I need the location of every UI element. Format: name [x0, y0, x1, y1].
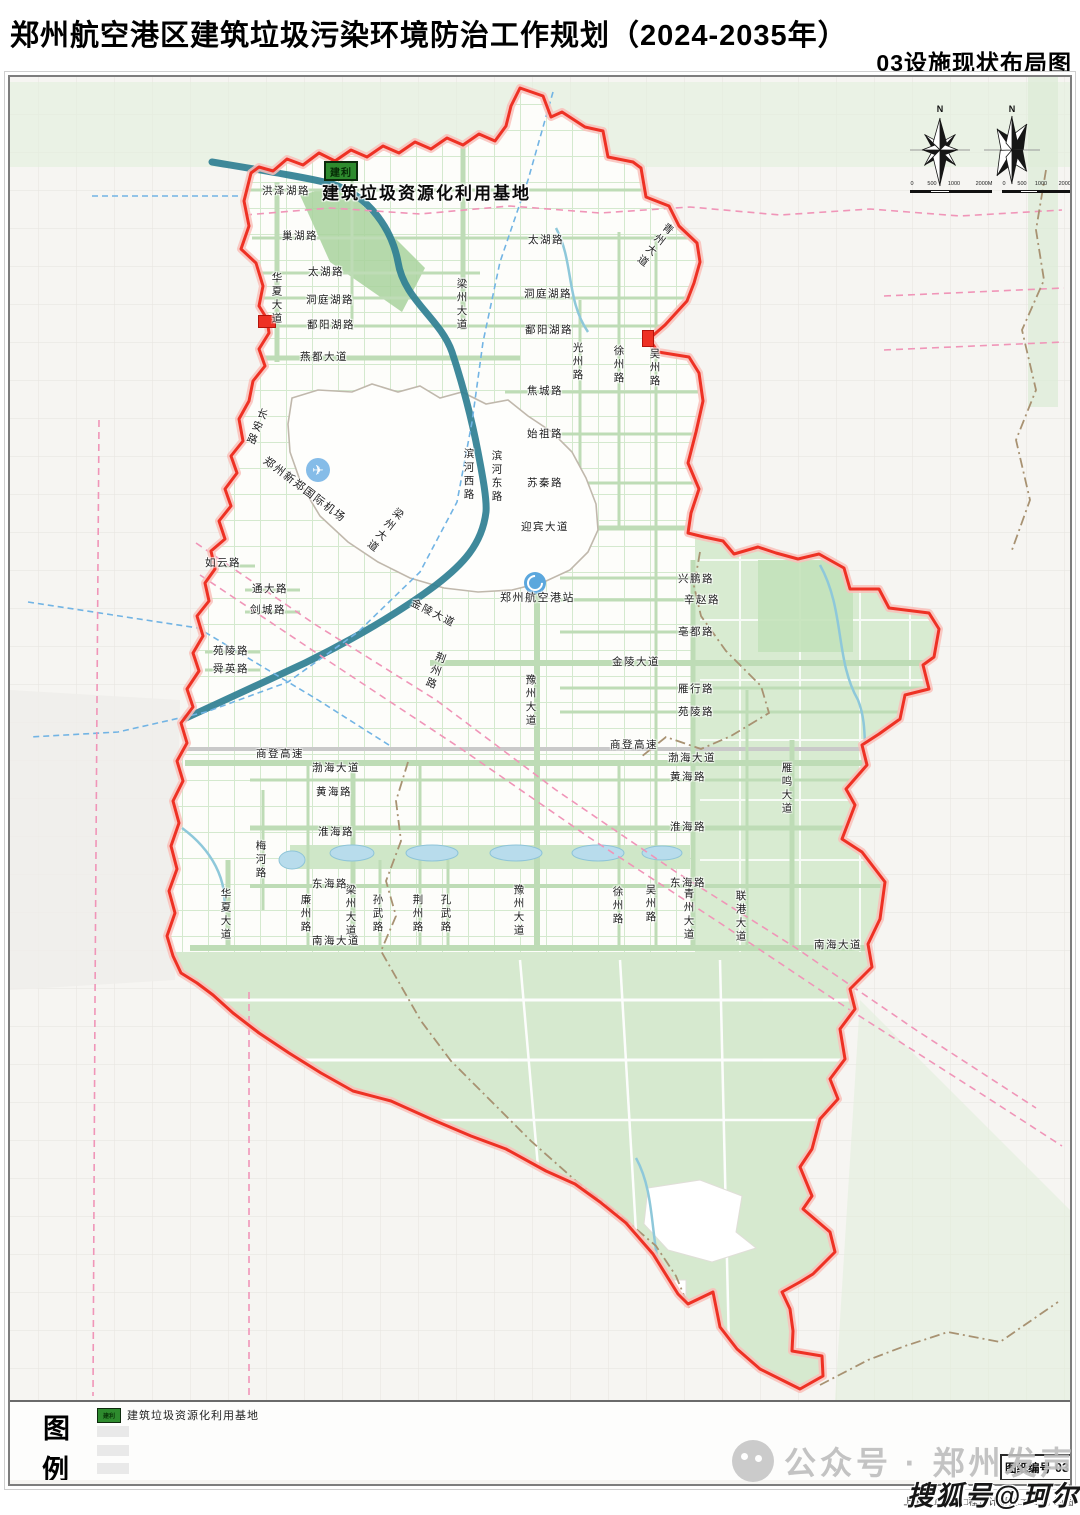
road-label: 吴州路	[644, 884, 656, 925]
road-label: 郑州航空港站	[500, 592, 575, 604]
road-label: 雁行路	[678, 684, 714, 696]
road-label: 苑陵路	[678, 707, 714, 719]
scale-bar-1: 0 500 1000 2000M	[910, 181, 992, 197]
road-label: 光州路	[571, 342, 583, 383]
road-label: 苏秦路	[527, 478, 563, 490]
road-label: 洞庭湖路	[306, 295, 354, 307]
road-label: 迎宾大道	[521, 522, 569, 534]
page: 郑州航空港区建筑垃圾污染环境防治工作规划（2024-2035年） 03设施现状布…	[0, 0, 1080, 1515]
legend-placeholder	[97, 1426, 129, 1437]
watermark-sohu: 搜狐号@珂尔	[907, 1474, 1080, 1513]
railway-station-icon	[524, 572, 546, 594]
road-label: 始祖路	[527, 429, 563, 441]
road-label: 淮海路	[670, 822, 706, 834]
road-label: 荆州路	[411, 894, 423, 935]
legend-title-top: 图	[43, 1407, 72, 1446]
road-label: 太湖路	[308, 267, 344, 279]
road-label: 徐州路	[612, 345, 624, 386]
road-label: 太湖路	[528, 235, 564, 247]
road-label: 巢湖路	[282, 231, 318, 243]
road-label: 渤海大道	[312, 763, 360, 775]
road-label: 渤海大道	[668, 753, 716, 765]
road-label: 梅河路	[254, 840, 266, 881]
road-label: 洞庭湖路	[524, 289, 572, 301]
road-label: 黄海路	[670, 772, 706, 784]
road-label: 联港大道	[734, 890, 746, 944]
road-label: 华夏大道	[219, 888, 231, 942]
road-label: 华夏大道	[270, 272, 282, 326]
road-label: 辛赵路	[684, 595, 720, 607]
road-label: 梁州大道	[344, 884, 356, 938]
legend-placeholder	[97, 1445, 129, 1456]
road-label: 商登高速	[610, 740, 658, 752]
compass-north-label: N	[937, 104, 944, 114]
road-label: 南海大道	[814, 940, 862, 952]
facility-callout-label: 建筑垃圾资源化利用基地	[322, 179, 531, 204]
road-label: 豫州大道	[512, 884, 524, 938]
page-title: 郑州航空港区建筑垃圾污染环境防治工作规划（2024-2035年）	[10, 12, 848, 54]
map-drawing: N N	[10, 77, 1070, 1400]
road-label: 金陵大道	[612, 657, 660, 669]
road-label: 吴州路	[648, 348, 660, 389]
facility-marker-jianli: 建利	[324, 161, 358, 181]
page-subtitle: 03设施现状布局图	[876, 44, 1072, 78]
road-label: 孙武路	[371, 894, 383, 935]
road-label: 舜英路	[213, 664, 249, 676]
map-canvas: N N	[10, 77, 1070, 1480]
road-label: 豫州大道	[524, 674, 536, 728]
road-label: 亳都路	[678, 627, 714, 639]
compass-north-label: N	[1009, 104, 1016, 114]
legend-swatch-facility: 建利	[97, 1408, 121, 1423]
road-label: 燕都大道	[300, 352, 348, 364]
road-label: 雁鸣大道	[780, 762, 792, 816]
road-label: 商登高速	[256, 749, 304, 761]
road-label: 青州大道	[682, 888, 694, 942]
road-label: 黄海路	[316, 787, 352, 799]
road-label: 如云路	[205, 558, 241, 570]
road-label: 鄱阳湖路	[307, 320, 355, 332]
road-label: 通大路	[252, 584, 288, 596]
legend-placeholder	[97, 1463, 129, 1474]
road-label: 洪泽湖路	[262, 186, 310, 198]
road-label: 淮海路	[318, 827, 354, 839]
road-label: 孔武路	[439, 894, 451, 935]
map-frame: N N	[8, 75, 1072, 1486]
legend-label-facility: 建筑垃圾资源化利用基地	[127, 1407, 259, 1423]
facility-marker-red-east	[642, 330, 654, 347]
road-label: 滨河东路	[490, 450, 502, 504]
road-label: 廉州路	[299, 894, 311, 935]
road-label: 剑城路	[250, 605, 286, 617]
road-label: 梁州大道	[455, 278, 467, 332]
road-label: 鄱阳湖路	[525, 325, 573, 337]
scale-bar-2: 0 500 1000 2000M	[1002, 181, 1070, 197]
road-label: 苑陵路	[213, 646, 249, 658]
road-label: 焦城路	[527, 386, 563, 398]
road-label: 滨河西路	[462, 448, 474, 502]
road-label: 徐州路	[611, 886, 623, 927]
road-label: 南海大道	[312, 936, 360, 948]
road-label: 兴鹏路	[678, 574, 714, 586]
road-label: 东海路	[312, 879, 348, 891]
wechat-icon	[732, 1440, 774, 1482]
legend-title-bottom: 例	[42, 1448, 71, 1480]
airport-icon: ✈	[306, 458, 330, 482]
